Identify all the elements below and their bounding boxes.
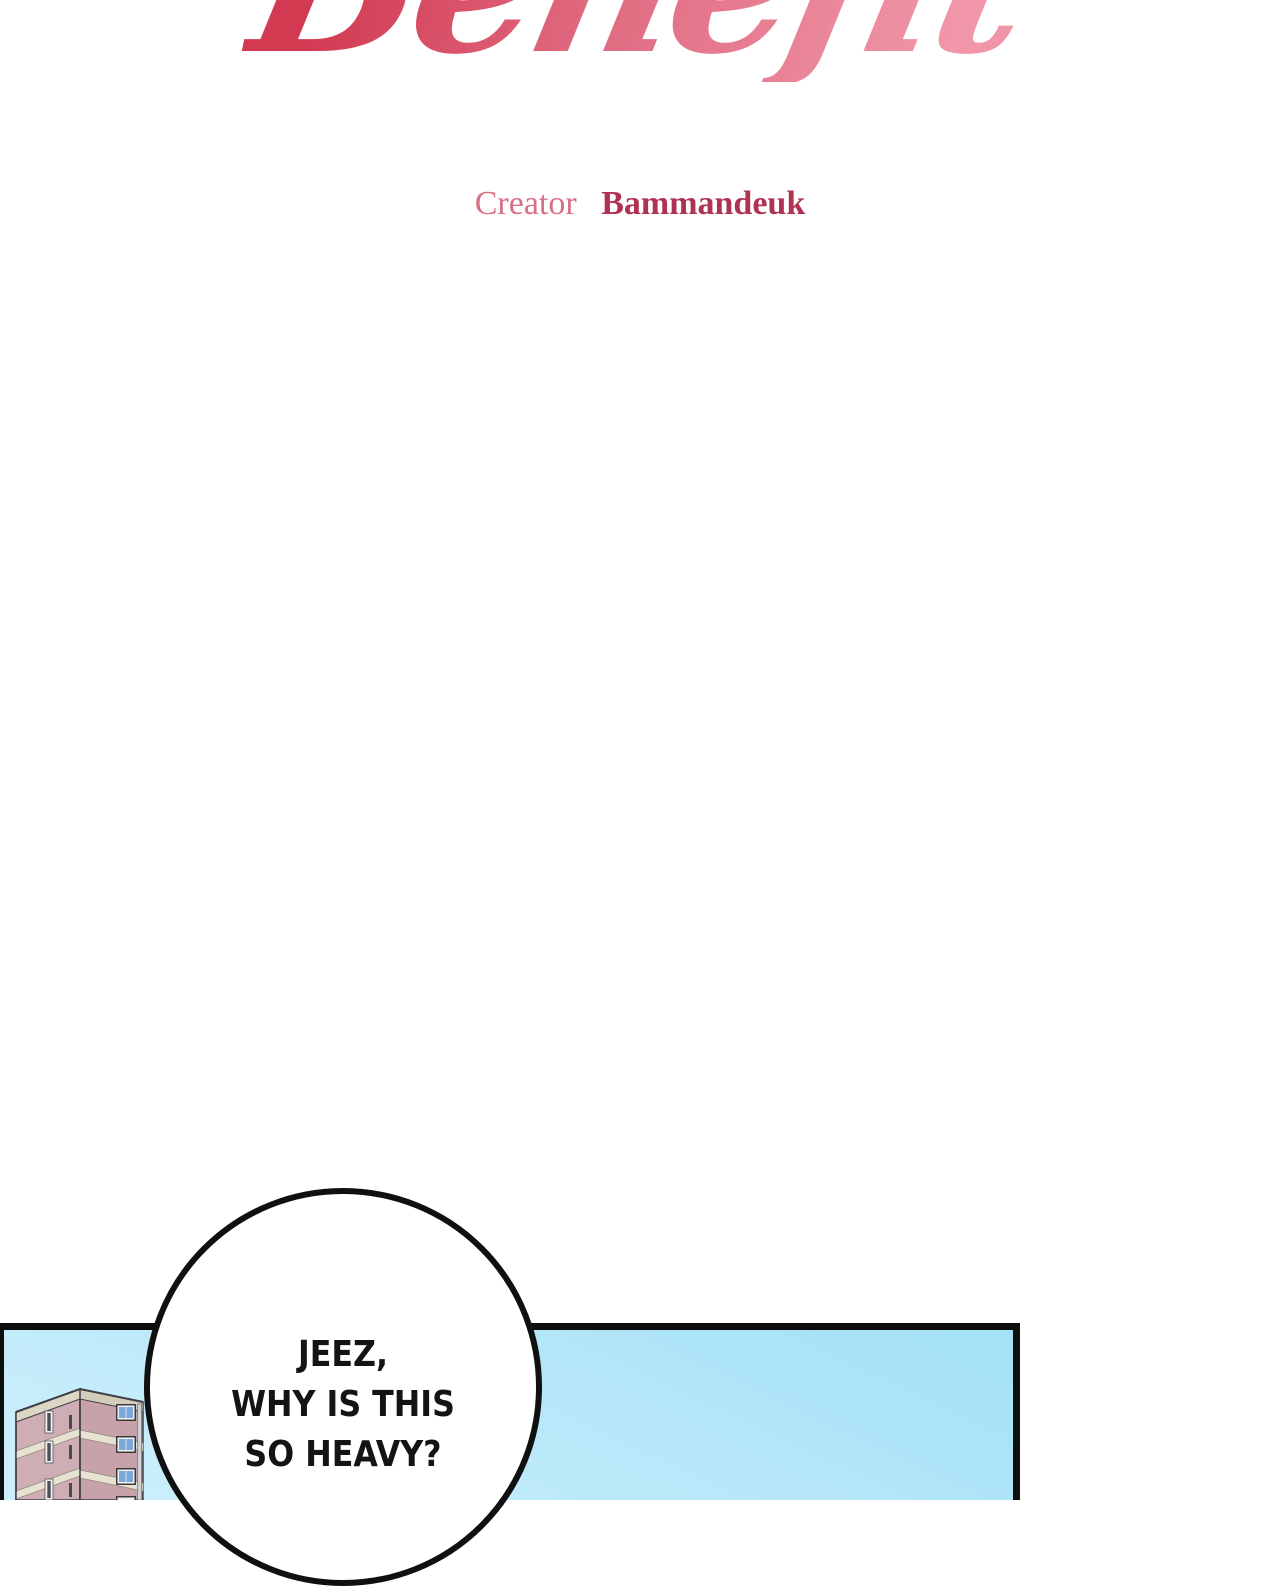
speech-line: WHY IS THIS [167,1380,519,1430]
speech-line: JEEZ, [167,1330,519,1380]
speech-bubble-text: JEEZ, WHY IS THIS SO HEAVY? [167,1330,519,1480]
building-downpipe [138,1404,142,1500]
credit-label: Creator [475,185,577,222]
webtoon-page: { "title": { "text": "Benefit", "gradien… [0,0,1280,1500]
speech-line: SO HEAVY? [167,1430,519,1480]
credit-line: Creator Bammandeuk [0,184,1280,224]
building-illustration [12,1375,162,1500]
credit-author-name: Bammandeuk [601,185,805,222]
series-title: Benefit [235,0,1045,82]
title-banner: Benefit [0,0,1280,102]
